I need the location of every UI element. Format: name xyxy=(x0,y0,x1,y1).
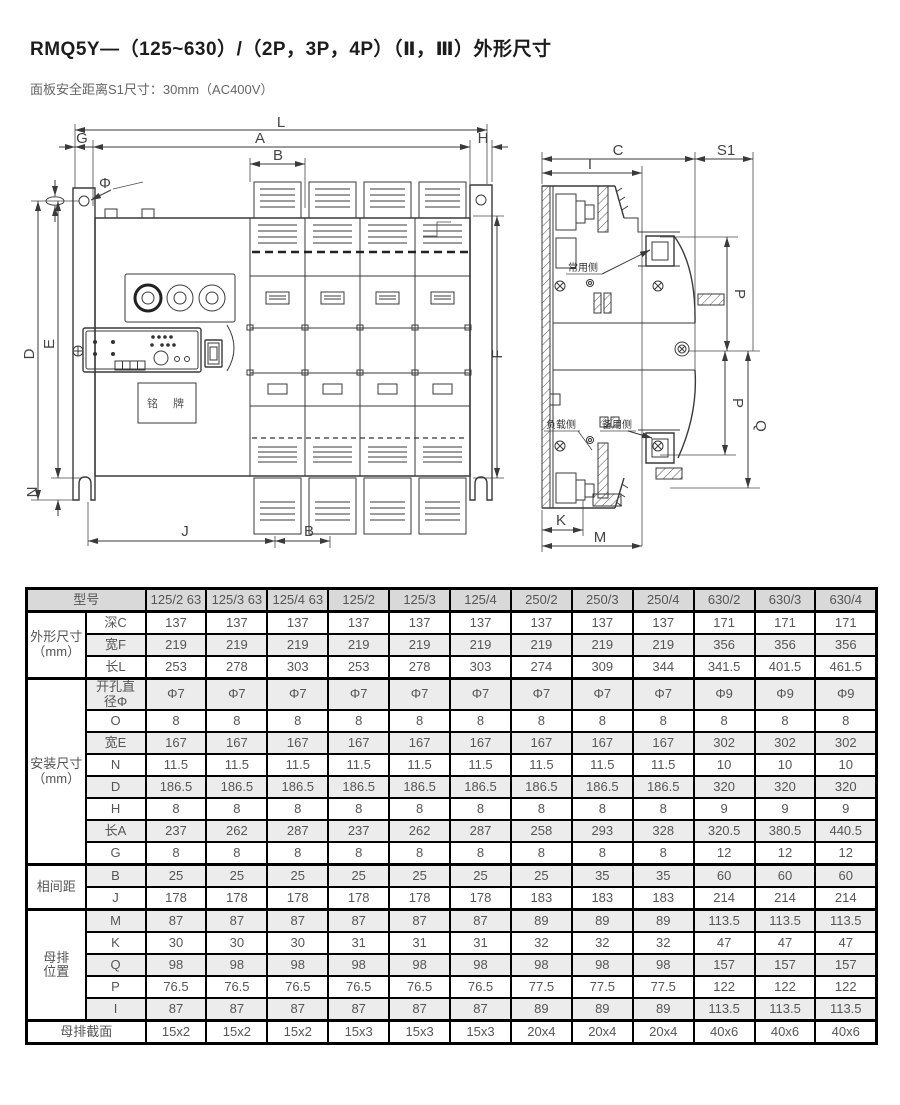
table-cell: 341.5 xyxy=(694,656,755,679)
row-label: 深C xyxy=(86,612,146,635)
row-label: O xyxy=(86,710,146,732)
table-cell: 77.5 xyxy=(511,976,572,998)
table-cell: 8 xyxy=(633,798,694,820)
table-row: 宽F219219219219219219219219219356356356 xyxy=(27,634,877,656)
table-cell: 10 xyxy=(694,754,755,776)
table-cell: 122 xyxy=(694,976,755,998)
table-cell: 35 xyxy=(572,865,633,888)
table-cell: 8 xyxy=(633,710,694,732)
row-label: J xyxy=(86,887,146,910)
table-cell: 157 xyxy=(815,954,876,976)
model-column-1: 125/3 63 xyxy=(206,589,267,612)
table-cell: 8 xyxy=(572,798,633,820)
table-cell: 32 xyxy=(572,932,633,954)
table-cell: Φ9 xyxy=(694,679,755,711)
table-row: 长L253278303253278303274309344341.5401.54… xyxy=(27,656,877,679)
table-cell: 30 xyxy=(267,932,328,954)
dim-phi: Φ xyxy=(99,175,111,192)
table-cell: 32 xyxy=(633,932,694,954)
table-row: O888888888888 xyxy=(27,710,877,732)
table-cell: 87 xyxy=(206,998,267,1021)
rocker-switch xyxy=(205,340,222,367)
dim-I: I xyxy=(588,156,592,173)
table-cell: 89 xyxy=(572,910,633,933)
table-cell: 253 xyxy=(146,656,207,679)
front-view-drawing: L A G H B Φ D E N F xyxy=(25,116,505,574)
table-cell: Φ7 xyxy=(511,679,572,711)
dim-P-lower: P xyxy=(729,398,746,408)
table-cell: 76.5 xyxy=(328,976,389,998)
table-cell: Φ7 xyxy=(206,679,267,711)
table-cell: 186.5 xyxy=(511,776,572,798)
table-row: 安装尺寸 （mm）开孔直 径ΦΦ7Φ7Φ7Φ7Φ7Φ7Φ7Φ7Φ7Φ9Φ9Φ9 xyxy=(27,679,877,711)
table-cell: 8 xyxy=(389,842,450,865)
table-cell: 89 xyxy=(633,998,694,1021)
table-cell: 171 xyxy=(694,612,755,635)
model-header-cell: 型号 xyxy=(27,589,146,612)
table-cell: 287 xyxy=(267,820,328,842)
table-cell: 219 xyxy=(146,634,207,656)
table-cell: Φ7 xyxy=(633,679,694,711)
model-column-8: 250/4 xyxy=(633,589,694,612)
dim-B-top: B xyxy=(273,147,283,164)
table-cell: 237 xyxy=(146,820,207,842)
dim-S1: S1 xyxy=(717,142,735,159)
table-cell: 262 xyxy=(206,820,267,842)
row-group-label: 安装尺寸 （mm） xyxy=(27,679,86,865)
table-cell: 8 xyxy=(206,842,267,865)
table-cell: 11.5 xyxy=(146,754,207,776)
table-cell: 303 xyxy=(450,656,511,679)
row-label: 宽F xyxy=(86,634,146,656)
table-cell: 8 xyxy=(815,710,876,732)
table-cell: 137 xyxy=(328,612,389,635)
table-cell: 11.5 xyxy=(572,754,633,776)
table-cell: 183 xyxy=(633,887,694,910)
table-cell: 8 xyxy=(694,710,755,732)
table-cell: 287 xyxy=(450,820,511,842)
table-cell: 309 xyxy=(572,656,633,679)
table-cell: 122 xyxy=(755,976,816,998)
table-cell: 183 xyxy=(511,887,572,910)
table-cell: 157 xyxy=(694,954,755,976)
model-column-9: 630/2 xyxy=(694,589,755,612)
table-row: 长A237262287237262287258293328320.5380.54… xyxy=(27,820,877,842)
table-cell: 8 xyxy=(450,842,511,865)
table-row: Q989898989898989898157157157 xyxy=(27,954,877,976)
table-cell: 171 xyxy=(755,612,816,635)
table-cell: 98 xyxy=(146,954,207,976)
table-cell: 8 xyxy=(511,798,572,820)
row-label: N xyxy=(86,754,146,776)
table-cell: 344 xyxy=(633,656,694,679)
side-body: 常用侧 负载侧 备用侧 xyxy=(542,186,724,508)
table-cell: 60 xyxy=(755,865,816,888)
table-cell: 87 xyxy=(450,998,511,1021)
table-cell: 12 xyxy=(755,842,816,865)
table-cell: 20x4 xyxy=(633,1021,694,1044)
table-cell: 40x6 xyxy=(694,1021,755,1044)
table-cell: 302 xyxy=(755,732,816,754)
table-cell: 8 xyxy=(146,710,207,732)
table-row: 宽E167167167167167167167167167302302302 xyxy=(27,732,877,754)
table-cell: 47 xyxy=(815,932,876,954)
side-labels: 常用侧 负载侧 备用侧 xyxy=(544,250,652,450)
table-cell: 401.5 xyxy=(755,656,816,679)
table-cell: 137 xyxy=(511,612,572,635)
table-cell: Φ9 xyxy=(755,679,816,711)
table-cell: 15x3 xyxy=(389,1021,450,1044)
table-cell: 183 xyxy=(572,887,633,910)
table-cell: 186.5 xyxy=(633,776,694,798)
table-cell: 25 xyxy=(511,865,572,888)
row-group-label: 母排 位置 xyxy=(27,910,86,1021)
table-cell: 98 xyxy=(511,954,572,976)
table-cell: 11.5 xyxy=(328,754,389,776)
table-cell: 8 xyxy=(511,842,572,865)
model-column-11: 630/4 xyxy=(815,589,876,612)
table-cell: 15x3 xyxy=(450,1021,511,1044)
table-cell: 356 xyxy=(694,634,755,656)
table-row: 母排 位置M878787878787898989113.5113.5113.5 xyxy=(27,910,877,933)
table-cell: 98 xyxy=(267,954,328,976)
model-column-4: 125/3 xyxy=(389,589,450,612)
model-column-0: 125/2 63 xyxy=(146,589,207,612)
table-cell: 219 xyxy=(511,634,572,656)
table-cell: 12 xyxy=(815,842,876,865)
table-cell: 167 xyxy=(572,732,633,754)
table-cell: 98 xyxy=(450,954,511,976)
table-cell: 8 xyxy=(267,710,328,732)
row-label: 宽E xyxy=(86,732,146,754)
table-cell: 167 xyxy=(633,732,694,754)
table-cell: 8 xyxy=(389,798,450,820)
table-cell: 113.5 xyxy=(815,910,876,933)
table-cell: Φ9 xyxy=(815,679,876,711)
table-cell: 178 xyxy=(450,887,511,910)
table-cell: 219 xyxy=(450,634,511,656)
table-cell: 77.5 xyxy=(572,976,633,998)
table-cell: 293 xyxy=(572,820,633,842)
table-cell: 8 xyxy=(450,710,511,732)
table-cell: 122 xyxy=(815,976,876,998)
table-row: J178178178178178178183183183214214214 xyxy=(27,887,877,910)
row-label: 开孔直 径Φ xyxy=(86,679,146,711)
footer-label: 母排截面 xyxy=(27,1021,146,1044)
table-cell: 274 xyxy=(511,656,572,679)
dimensions-table: 型号125/2 63125/3 63125/4 63125/2125/3125/… xyxy=(25,587,878,1045)
table-cell: 98 xyxy=(633,954,694,976)
pole-bottom-blocks xyxy=(254,478,466,534)
table-cell: 186.5 xyxy=(572,776,633,798)
table-cell: 137 xyxy=(450,612,511,635)
table-cell: 8 xyxy=(572,842,633,865)
table-cell: 320.5 xyxy=(694,820,755,842)
table-cell: 214 xyxy=(815,887,876,910)
model-column-6: 250/2 xyxy=(511,589,572,612)
table-cell: 47 xyxy=(755,932,816,954)
table-cell: 356 xyxy=(755,634,816,656)
dim-P-upper: P xyxy=(731,289,748,299)
table-cell: 8 xyxy=(206,798,267,820)
table-cell: 137 xyxy=(633,612,694,635)
table-cell: 11.5 xyxy=(511,754,572,776)
table-cell: 186.5 xyxy=(146,776,207,798)
table-cell: 262 xyxy=(389,820,450,842)
table-cell: 87 xyxy=(146,910,207,933)
table-cell: 77.5 xyxy=(633,976,694,998)
table-cell: Φ7 xyxy=(146,679,207,711)
table-cell: 167 xyxy=(450,732,511,754)
table-cell: 11.5 xyxy=(450,754,511,776)
table-cell: 87 xyxy=(389,998,450,1021)
table-cell: 40x6 xyxy=(815,1021,876,1044)
dimension-table-wrap: 型号125/2 63125/3 63125/4 63125/2125/3125/… xyxy=(25,587,878,1045)
table-cell: 356 xyxy=(815,634,876,656)
side-view-drawing: C S1 I P P Q K M xyxy=(520,138,900,568)
table-cell: 11.5 xyxy=(267,754,328,776)
table-cell: 10 xyxy=(755,754,816,776)
model-column-2: 125/4 63 xyxy=(267,589,328,612)
table-cell: 167 xyxy=(206,732,267,754)
table-cell: 31 xyxy=(328,932,389,954)
table-cell: 171 xyxy=(815,612,876,635)
table-cell: 219 xyxy=(633,634,694,656)
table-row: D186.5186.5186.5186.5186.5186.5186.5186.… xyxy=(27,776,877,798)
table-cell: 258 xyxy=(511,820,572,842)
table-row: I878787878787898989113.5113.5113.5 xyxy=(27,998,877,1021)
row-group-label: 外形尺寸 （mm） xyxy=(27,612,86,679)
table-cell: 12 xyxy=(694,842,755,865)
pole-top-blocks xyxy=(254,182,466,218)
table-cell: 320 xyxy=(694,776,755,798)
table-cell: 15x2 xyxy=(267,1021,328,1044)
table-cell: 89 xyxy=(633,910,694,933)
table-cell: 186.5 xyxy=(206,776,267,798)
table-cell: 89 xyxy=(572,998,633,1021)
table-cell: 25 xyxy=(328,865,389,888)
table-cell: 98 xyxy=(572,954,633,976)
table-cell: 167 xyxy=(146,732,207,754)
table-cell: 11.5 xyxy=(633,754,694,776)
dim-K: K xyxy=(556,512,566,529)
table-cell: 31 xyxy=(450,932,511,954)
row-label: 长A xyxy=(86,820,146,842)
normal-side-label: 常用侧 xyxy=(568,261,598,274)
front-body: 铭 牌 xyxy=(73,182,492,534)
page-title: RMQ5Y—（125~630）/（2P，3P，4P）（Ⅱ，Ⅲ）外形尺寸 xyxy=(30,34,552,61)
table-cell: 11.5 xyxy=(389,754,450,776)
table-row: N11.511.511.511.511.511.511.511.511.5101… xyxy=(27,754,877,776)
table-cell: Φ7 xyxy=(389,679,450,711)
table-cell: 31 xyxy=(389,932,450,954)
table-header-row: 型号125/2 63125/3 63125/4 63125/2125/3125/… xyxy=(27,589,877,612)
table-cell: 113.5 xyxy=(755,998,816,1021)
table-footer-row: 母排截面15x215x215x215x315x315x320x420x420x4… xyxy=(27,1021,877,1044)
table-cell: 25 xyxy=(146,865,207,888)
row-label: I xyxy=(86,998,146,1021)
table-cell: 89 xyxy=(511,998,572,1021)
table-cell: 178 xyxy=(267,887,328,910)
table-cell: 20x4 xyxy=(511,1021,572,1044)
table-cell: 35 xyxy=(633,865,694,888)
table-cell: 302 xyxy=(694,732,755,754)
table-cell: 8 xyxy=(755,710,816,732)
table-cell: 137 xyxy=(146,612,207,635)
table-cell: 40x6 xyxy=(755,1021,816,1044)
table-cell: 8 xyxy=(389,710,450,732)
table-cell: 113.5 xyxy=(694,998,755,1021)
table-cell: 8 xyxy=(267,842,328,865)
dim-L: L xyxy=(277,114,285,131)
table-cell: Φ7 xyxy=(450,679,511,711)
table-cell: 87 xyxy=(267,910,328,933)
table-cell: 8 xyxy=(328,842,389,865)
table-cell: Φ7 xyxy=(572,679,633,711)
table-cell: Φ7 xyxy=(328,679,389,711)
table-cell: 278 xyxy=(389,656,450,679)
table-cell: 8 xyxy=(450,798,511,820)
table-cell: 113.5 xyxy=(815,998,876,1021)
row-label: 长L xyxy=(86,656,146,679)
table-cell: 214 xyxy=(694,887,755,910)
table-cell: 237 xyxy=(328,820,389,842)
table-cell: 219 xyxy=(206,634,267,656)
table-cell: 25 xyxy=(450,865,511,888)
table-cell: 157 xyxy=(755,954,816,976)
table-cell: 8 xyxy=(572,710,633,732)
table-cell: 25 xyxy=(267,865,328,888)
table-cell: 8 xyxy=(328,710,389,732)
table-cell: 87 xyxy=(146,998,207,1021)
nameplate: 铭 牌 xyxy=(138,383,196,423)
model-column-5: 125/4 xyxy=(450,589,511,612)
table-cell: 8 xyxy=(267,798,328,820)
table-cell: 60 xyxy=(694,865,755,888)
table-cell: 9 xyxy=(694,798,755,820)
table-cell: 8 xyxy=(146,798,207,820)
table-cell: 9 xyxy=(815,798,876,820)
table-cell: 87 xyxy=(206,910,267,933)
dim-C: C xyxy=(613,142,624,159)
table-cell: 15x2 xyxy=(146,1021,207,1044)
row-label: K xyxy=(86,932,146,954)
table-cell: 60 xyxy=(815,865,876,888)
table-cell: 303 xyxy=(267,656,328,679)
table-cell: 178 xyxy=(389,887,450,910)
table-cell: 219 xyxy=(572,634,633,656)
standby-side-label: 备用侧 xyxy=(602,418,632,431)
table-cell: 87 xyxy=(389,910,450,933)
table-cell: 9 xyxy=(755,798,816,820)
table-cell: 8 xyxy=(328,798,389,820)
table-cell: 87 xyxy=(328,910,389,933)
table-cell: 167 xyxy=(267,732,328,754)
dim-G: G xyxy=(76,130,88,147)
dim-J: J xyxy=(181,523,189,540)
table-cell: 98 xyxy=(389,954,450,976)
row-label: D xyxy=(86,776,146,798)
table-cell: 76.5 xyxy=(146,976,207,998)
table-cell: 219 xyxy=(267,634,328,656)
model-column-7: 250/3 xyxy=(572,589,633,612)
table-cell: 8 xyxy=(146,842,207,865)
dim-H: H xyxy=(478,130,489,147)
row-label: P xyxy=(86,976,146,998)
controller-panel xyxy=(83,325,234,372)
table-cell: 30 xyxy=(206,932,267,954)
table-cell: 178 xyxy=(328,887,389,910)
table-cell: 8 xyxy=(206,710,267,732)
table-cell: 167 xyxy=(328,732,389,754)
table-cell: 76.5 xyxy=(389,976,450,998)
table-cell: 10 xyxy=(815,754,876,776)
dim-A: A xyxy=(255,130,265,147)
table-cell: 98 xyxy=(206,954,267,976)
table-cell: 8 xyxy=(633,842,694,865)
table-cell: 98 xyxy=(328,954,389,976)
table-cell: 167 xyxy=(389,732,450,754)
table-cell: 25 xyxy=(389,865,450,888)
page-subtitle: 面板安全距离S1尺寸：30mm（AC400V） xyxy=(30,79,273,98)
table-row: P76.576.576.576.576.576.577.577.577.5122… xyxy=(27,976,877,998)
table-cell: 32 xyxy=(511,932,572,954)
table-cell: Φ7 xyxy=(267,679,328,711)
table-row: 相间距B252525252525253535606060 xyxy=(27,865,877,888)
table-cell: 113.5 xyxy=(755,910,816,933)
table-cell: 20x4 xyxy=(572,1021,633,1044)
table-cell: 113.5 xyxy=(694,910,755,933)
table-body: 外形尺寸 （mm）深C13713713713713713713713713717… xyxy=(27,612,877,1044)
table-cell: 87 xyxy=(450,910,511,933)
table-cell: 253 xyxy=(328,656,389,679)
table-cell: 186.5 xyxy=(450,776,511,798)
table-cell: 137 xyxy=(267,612,328,635)
dim-E: E xyxy=(41,339,58,349)
table-cell: 167 xyxy=(511,732,572,754)
table-head: 型号125/2 63125/3 63125/4 63125/2125/3125/… xyxy=(27,589,877,612)
panel-screw xyxy=(73,346,83,356)
table-cell: 219 xyxy=(328,634,389,656)
table-cell: 87 xyxy=(267,998,328,1021)
table-cell: 11.5 xyxy=(206,754,267,776)
table-cell: 219 xyxy=(389,634,450,656)
indicator-lamps xyxy=(125,274,235,322)
row-label: B xyxy=(86,865,146,888)
table-cell: 328 xyxy=(633,820,694,842)
table-row: G888888888121212 xyxy=(27,842,877,865)
table-cell: 320 xyxy=(755,776,816,798)
table-cell: 15x3 xyxy=(328,1021,389,1044)
datasheet-page: { "page": { "title": "RMQ5Y—（125~630）/（2… xyxy=(0,0,900,1105)
table-cell: 137 xyxy=(206,612,267,635)
table-cell: 30 xyxy=(146,932,207,954)
table-cell: 461.5 xyxy=(815,656,876,679)
table-cell: 76.5 xyxy=(267,976,328,998)
table-cell: 178 xyxy=(206,887,267,910)
table-cell: 178 xyxy=(146,887,207,910)
table-cell: 137 xyxy=(572,612,633,635)
table-cell: 137 xyxy=(389,612,450,635)
table-cell: 302 xyxy=(815,732,876,754)
table-cell: 15x2 xyxy=(206,1021,267,1044)
row-label: M xyxy=(86,910,146,933)
dim-N: N xyxy=(24,487,41,498)
table-cell: 8 xyxy=(511,710,572,732)
row-label: G xyxy=(86,842,146,865)
table-cell: 87 xyxy=(328,998,389,1021)
nameplate-text: 铭 牌 xyxy=(147,396,190,410)
